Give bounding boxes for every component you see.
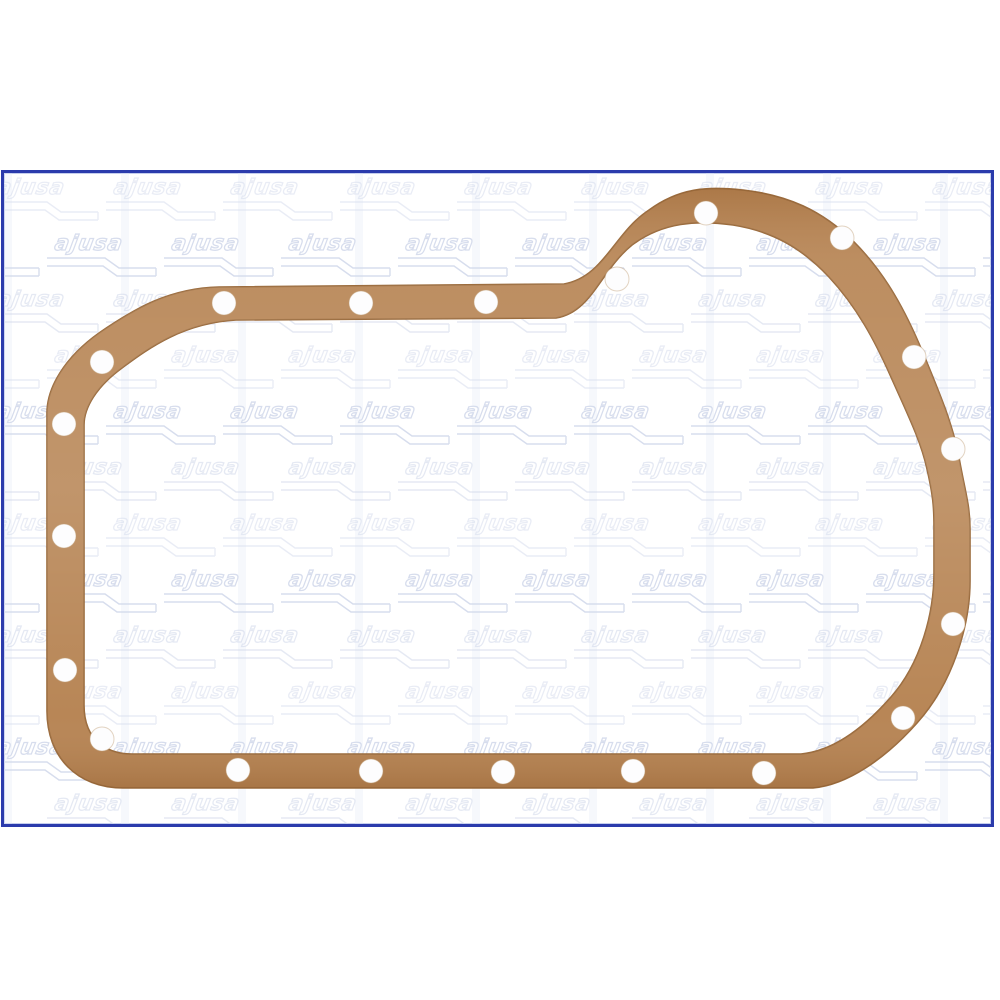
product-image-frame: ajusaajusaajusaajusaajusaajusaajusaajusa… xyxy=(1,170,994,827)
bolt-hole xyxy=(53,658,77,682)
bolt-hole xyxy=(212,291,236,315)
bolt-hole xyxy=(359,759,383,783)
bolt-hole xyxy=(830,226,854,250)
bolt-hole xyxy=(90,727,114,751)
bolt-hole xyxy=(90,350,114,374)
bolt-hole xyxy=(902,345,926,369)
gasket-shading xyxy=(47,188,970,788)
bolt-hole xyxy=(694,201,718,225)
bolt-hole xyxy=(891,706,915,730)
gasket-image xyxy=(4,173,991,824)
bolt-hole xyxy=(941,437,965,461)
bolt-hole xyxy=(605,267,629,291)
bolt-hole xyxy=(941,612,965,636)
bolt-hole xyxy=(752,761,776,785)
bolt-hole xyxy=(621,759,645,783)
bolt-hole xyxy=(349,291,373,315)
bolt-hole xyxy=(491,760,515,784)
bolt-hole xyxy=(474,290,498,314)
bolt-hole xyxy=(52,412,76,436)
bolt-hole xyxy=(226,758,250,782)
bolt-hole xyxy=(52,524,76,548)
